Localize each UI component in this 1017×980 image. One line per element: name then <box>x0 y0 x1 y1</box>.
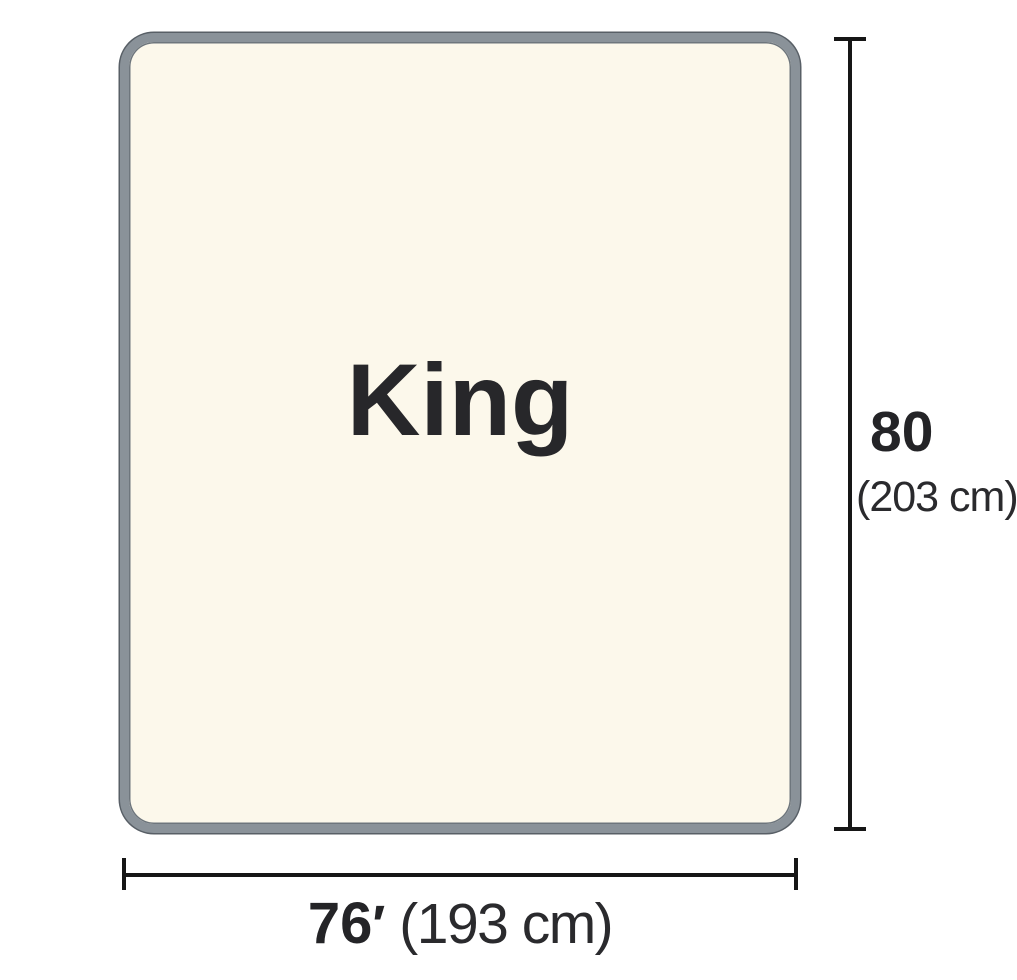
width-metric-label: (193 cm) <box>399 892 612 956</box>
mattress-outline: King <box>120 33 800 833</box>
width-dimension-line <box>122 873 798 877</box>
width-unit-mark: ′ <box>372 895 385 955</box>
width-dimension-label: 76′(193 cm) <box>120 891 800 958</box>
height-dimension-line <box>848 37 852 831</box>
height-metric-label: (203 cm) <box>856 476 1017 519</box>
width-value-label: 76 <box>308 891 373 956</box>
height-dimension-bottom-cap <box>834 827 866 831</box>
height-dimension-top-cap <box>834 37 866 41</box>
diagram-canvas: King 80 (203 cm) 76′(193 cm) <box>0 0 1017 980</box>
width-dimension-left-cap <box>122 858 126 890</box>
mattress-size-label: King <box>129 349 791 451</box>
height-value-label: 80 <box>870 404 933 461</box>
width-dimension-right-cap <box>794 858 798 890</box>
